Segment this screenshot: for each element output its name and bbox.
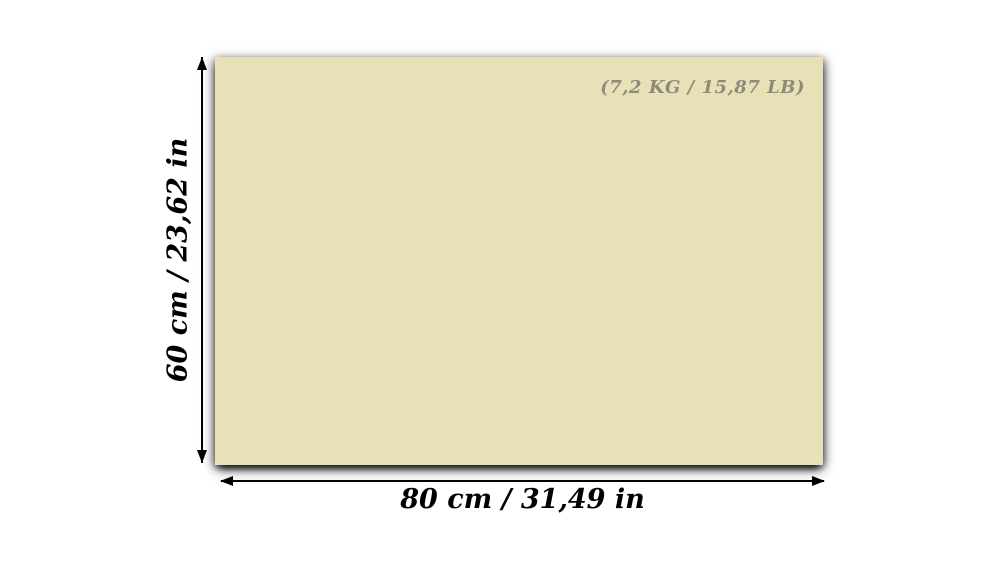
width-dimension-label: 80 cm / 31,49 in <box>220 484 825 515</box>
height-dimension-label: 60 cm / 23,62 in <box>163 138 194 382</box>
arrow-up-icon <box>197 57 207 70</box>
height-dimension-line <box>201 57 203 463</box>
weight-label: (7,2 KG / 15,87 LB) <box>600 77 805 98</box>
width-dimension-line <box>221 480 824 482</box>
product-dimension-diagram: (7,2 KG / 15,87 LB) 60 cm / 23,62 in 80 … <box>0 0 1000 563</box>
product-board: (7,2 KG / 15,87 LB) <box>215 57 823 465</box>
arrow-down-icon <box>197 450 207 463</box>
